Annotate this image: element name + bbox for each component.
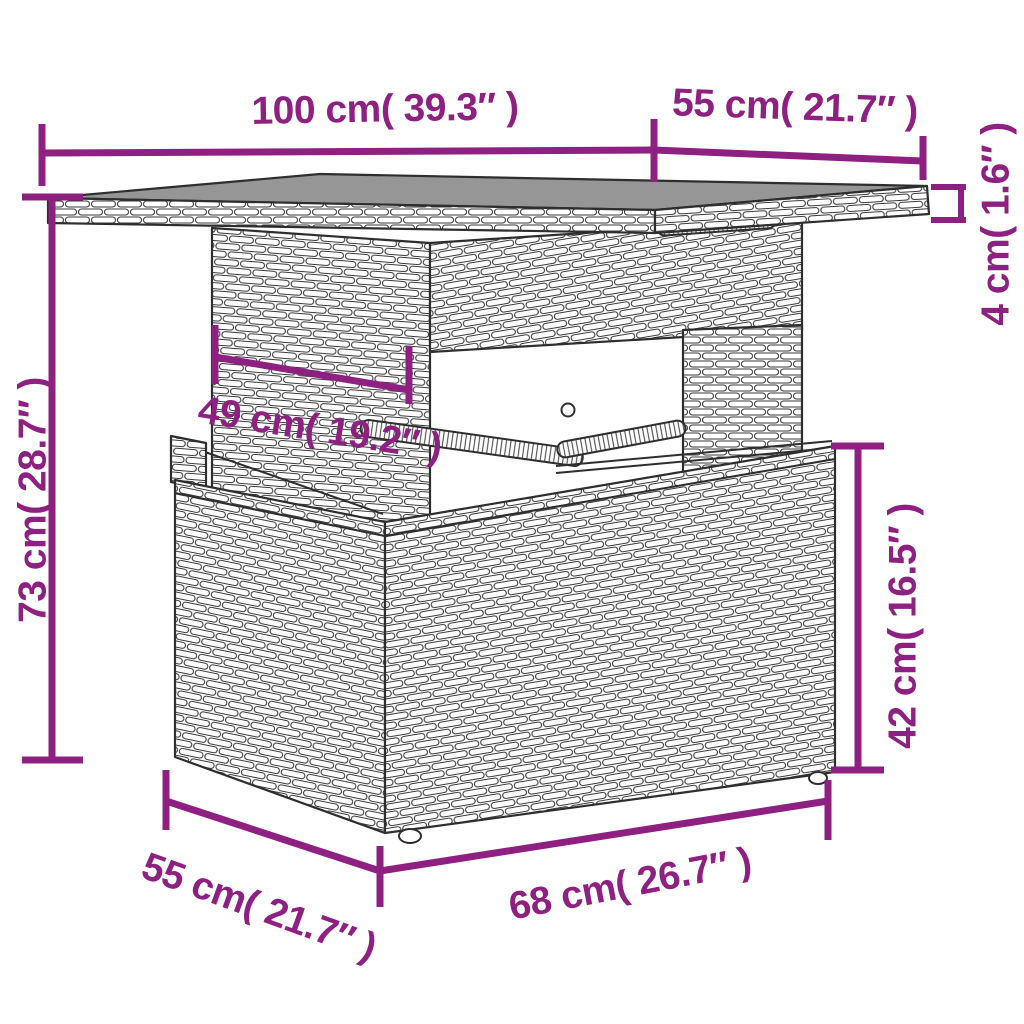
dim-line-tabletop-thickness <box>931 187 966 220</box>
dim-label-tabletop-width: 100 cm( 39.3″ ) <box>251 87 519 131</box>
rail-connector <box>562 404 575 417</box>
dim-label-tabletop-depth: 55 cm( 21.7″ ) <box>671 83 918 131</box>
back-rail-right <box>556 419 687 458</box>
base-front-face <box>175 480 385 833</box>
foot <box>809 772 827 784</box>
dim-label-base-height: 42 cm( 16.5″ ) <box>884 503 923 749</box>
dimension-diagram: 100 cm( 39.3″ ) 55 cm( 21.7″ ) 4 cm( 1.6… <box>0 0 1024 1024</box>
dim-label-tabletop-thickness: 4 cm( 1.6″ ) <box>977 122 1016 325</box>
dim-line-tabletop-depth <box>654 136 923 180</box>
foot <box>399 829 421 843</box>
tabletop <box>48 174 929 233</box>
dim-label-total-height: 73 cm( 28.7″ ) <box>14 377 53 623</box>
base-side-face <box>385 446 835 833</box>
dim-line-base-height <box>831 446 884 770</box>
